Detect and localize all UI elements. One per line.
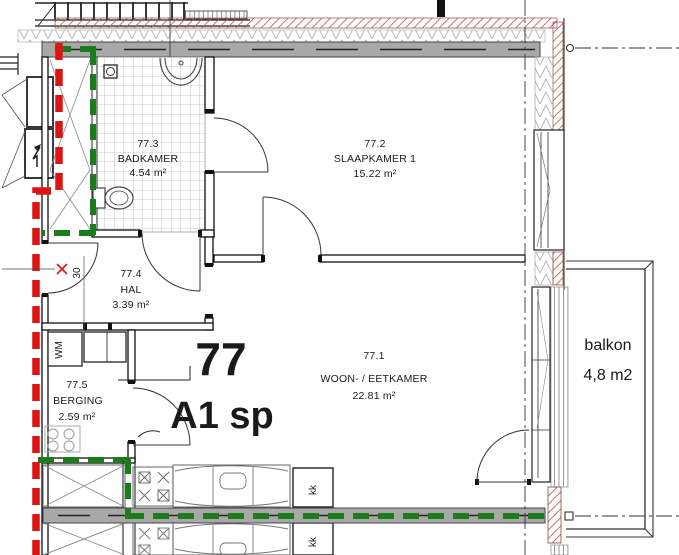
grid-lines [170, 0, 679, 555]
svg-text:3.39 m²: 3.39 m² [113, 299, 150, 311]
grid-bubble-bottom [565, 512, 573, 520]
svg-text:22.81 m²: 22.81 m² [352, 390, 395, 402]
room-label-woonkamer: 77.1 WOON- / EETKAMER 22.81 m² [320, 350, 427, 402]
svg-text:77: 77 [195, 333, 246, 385]
svg-text:77.4: 77.4 [120, 268, 141, 280]
svg-text:BERGING: BERGING [53, 395, 103, 407]
floor-plan-drawing: 77.3 BADKAMER 4.54 m² 77.2 SLAAPKAMER 1 … [0, 0, 679, 555]
kitchen-counter-icon [173, 465, 290, 507]
svg-text:77.2: 77.2 [364, 138, 385, 150]
svg-text:15.22 m²: 15.22 m² [353, 168, 396, 180]
room-label-hal: 77.4 HAL 3.39 m² [113, 268, 150, 311]
svg-text:WOON- / EETKAMER: WOON- / EETKAMER [320, 373, 427, 385]
fridge-label-1: kk [308, 484, 319, 495]
fridge-label-2: kk [308, 536, 319, 547]
svg-text:2.59 m²: 2.59 m² [59, 411, 96, 423]
right-exterior-wall [532, 18, 568, 555]
drain-box-icon [104, 65, 117, 78]
floor-plan: 77.3 BADKAMER 4.54 m² 77.2 SLAAPKAMER 1 … [0, 0, 679, 555]
svg-text:77.3: 77.3 [137, 138, 158, 150]
grid-bubble-top [567, 45, 574, 52]
svg-text:77.1: 77.1 [363, 350, 384, 362]
balcony-door-window [532, 287, 550, 482]
toilet-icon [93, 187, 133, 209]
svg-text:balkon: balkon [584, 337, 631, 354]
room-label-slaapkamer: 77.2 SLAAPKAMER 1 15.22 m² [334, 138, 416, 180]
balcony [566, 261, 653, 537]
meter-cupboard-2 [25, 129, 53, 178]
svg-text:77.5: 77.5 [66, 379, 87, 391]
bedroom-window [534, 130, 564, 250]
svg-text:4,8 m2: 4,8 m2 [584, 367, 633, 384]
sink-circles-icon [45, 426, 80, 452]
svg-text:SLAAPKAMER 1: SLAAPKAMER 1 [334, 153, 416, 165]
svg-text:4.54 m²: 4.54 m² [130, 167, 167, 179]
unit-label: 77 A1 sp [170, 333, 273, 437]
svg-text:A1 sp: A1 sp [170, 395, 273, 437]
dimension-label: 30 [72, 267, 83, 279]
meter-cupboard-1 [27, 77, 53, 127]
top-exterior-wall [18, 18, 557, 57]
cooktop-icon [133, 467, 173, 506]
svg-text:BADKAMER: BADKAMER [118, 153, 179, 165]
balcony-label: balkon 4,8 m2 [584, 337, 633, 384]
room-label-berging: 77.5 BERGING 2.59 m² [53, 379, 103, 423]
neighbour-kitchen [133, 523, 333, 555]
washing-machine-label: WM [54, 341, 65, 359]
svg-text:HAL: HAL [120, 284, 141, 296]
fire-marker-x-icon [57, 264, 67, 274]
